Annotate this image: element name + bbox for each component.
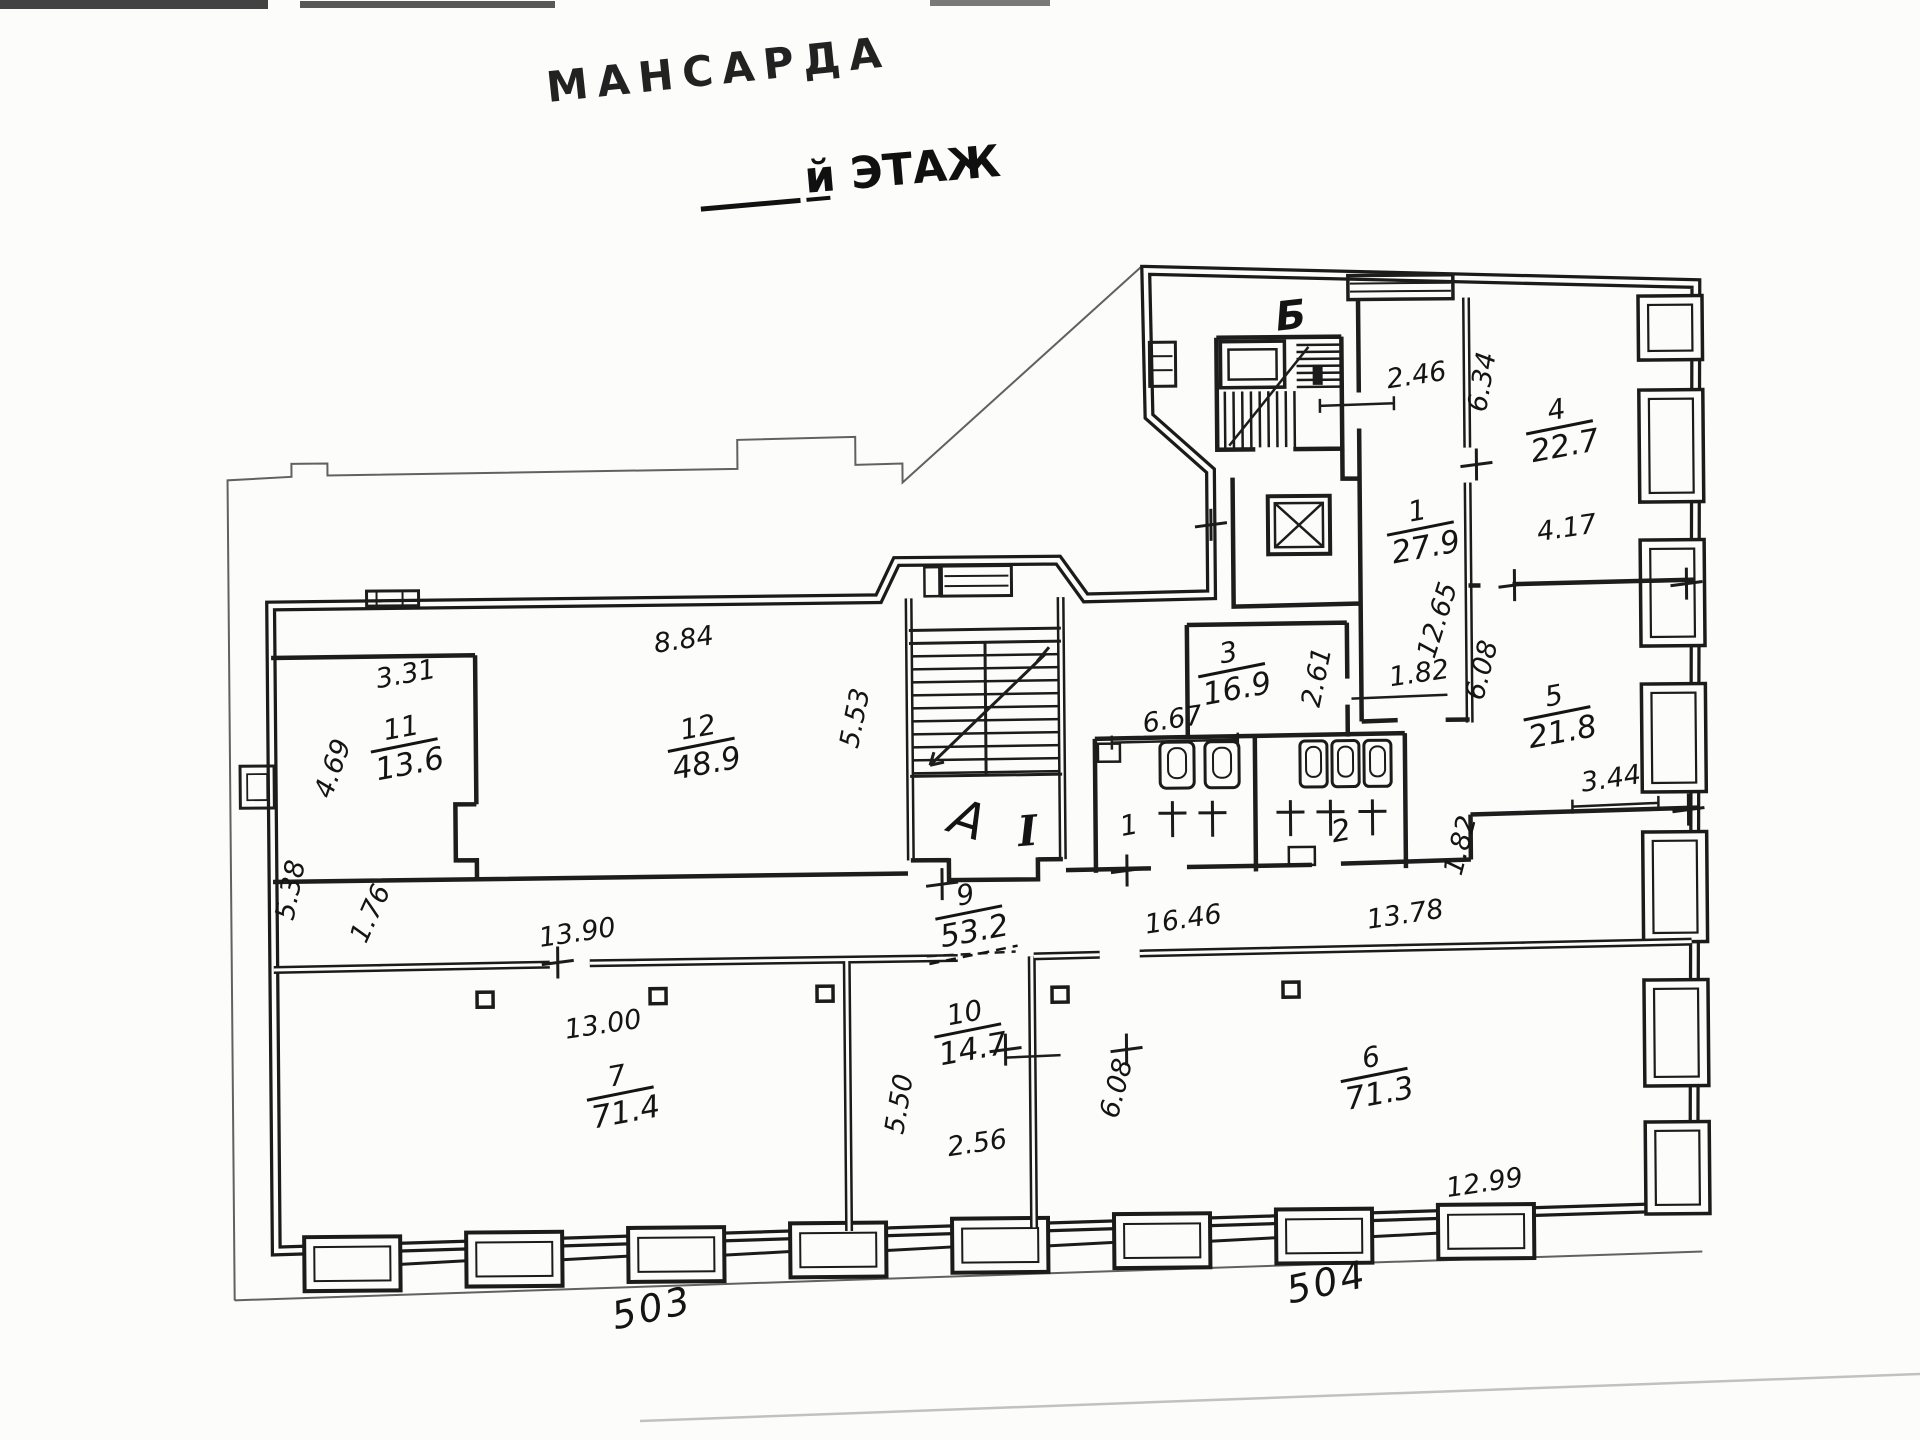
svg-text:13.6: 13.6 xyxy=(373,740,447,788)
point-label: 1 xyxy=(1117,807,1141,843)
dimension-label: 12.99 xyxy=(1444,1162,1525,1204)
svg-text:14.7: 14.7 xyxy=(936,1025,1011,1073)
dimension-label: 13.78 xyxy=(1365,894,1446,936)
right-window-bays xyxy=(1638,296,1710,1215)
floorplan-drawing: 2.466.344.173.441.8212.656.081.822.616.6… xyxy=(226,262,1711,1342)
columns xyxy=(477,982,1299,1007)
svg-text:11: 11 xyxy=(380,708,421,747)
svg-text:7: 7 xyxy=(605,1058,629,1094)
svg-text:6: 6 xyxy=(1359,1039,1383,1075)
svg-text:16.9: 16.9 xyxy=(1200,665,1274,713)
svg-text:71.4: 71.4 xyxy=(589,1088,663,1136)
dimension-label: 13.00 xyxy=(563,1004,644,1046)
dimension-label: 2.61 xyxy=(1296,645,1338,710)
point-label: Б xyxy=(1273,292,1309,341)
svg-text:12: 12 xyxy=(677,708,718,747)
dimension-label: 6.67 xyxy=(1140,700,1204,740)
room-label: 316.9 xyxy=(1192,630,1274,714)
dimension-label: 2.46 xyxy=(1384,356,1448,396)
scanned-floorplan-page: МАНСАРДА й ЭТАЖ xyxy=(0,0,1920,1440)
inner-walls-major xyxy=(268,296,1694,1236)
svg-text:9: 9 xyxy=(954,877,978,913)
dimension-label: 13.90 xyxy=(537,912,618,954)
svg-text:27.9: 27.9 xyxy=(1389,523,1463,571)
point-label: I xyxy=(1015,806,1041,857)
dimension-label: 5.53 xyxy=(834,686,876,751)
dimension-label: 3.31 xyxy=(373,654,438,695)
svg-text:71.3: 71.3 xyxy=(1342,1070,1416,1118)
floor-number-blank xyxy=(701,200,801,209)
svg-text:21.8: 21.8 xyxy=(1525,708,1599,756)
svg-text:22.7: 22.7 xyxy=(1528,422,1603,470)
svg-text:10: 10 xyxy=(944,993,985,1032)
dimension-label: 6.08 xyxy=(1094,1055,1139,1121)
room-label: 521.8 xyxy=(1517,673,1599,757)
floorplan-svg: МАНСАРДА й ЭТАЖ xyxy=(0,0,1920,1440)
svg-text:1: 1 xyxy=(1405,493,1429,529)
dimension-label: 1.82 xyxy=(1438,812,1483,878)
svg-text:3: 3 xyxy=(1217,635,1241,671)
room-label: 671.3 xyxy=(1334,1034,1416,1118)
dimension-label: 4.69 xyxy=(308,735,357,802)
dimension-label: 1.82 xyxy=(1387,654,1451,694)
title-block: МАНСАРДА й ЭТАЖ xyxy=(544,27,1003,213)
dimension-label: 12.65 xyxy=(1411,579,1464,662)
room-label: 422.7 xyxy=(1520,387,1603,471)
dimension-label: 16.46 xyxy=(1143,899,1224,941)
dimension-label: 5.50 xyxy=(879,1072,919,1136)
room-label: 1248.9 xyxy=(662,704,744,788)
dimension-label: 3.44 xyxy=(1579,759,1643,799)
svg-text:5: 5 xyxy=(1542,678,1566,714)
room-label: 1014.7 xyxy=(928,990,1011,1074)
dimension-label: 8.84 xyxy=(652,620,716,660)
svg-text:4: 4 xyxy=(1544,392,1568,428)
room-label: 1113.6 xyxy=(365,705,447,789)
room-label: 771.4 xyxy=(581,1053,663,1137)
labels-layer: 2.466.344.173.441.8212.656.081.822.616.6… xyxy=(264,289,1647,1342)
room-label: 127.9 xyxy=(1381,488,1463,572)
stairwell-b xyxy=(1216,337,1342,450)
point-label: А xyxy=(940,786,993,853)
page-title: МАНСАРДА xyxy=(544,27,893,112)
elevator-shaft xyxy=(1268,496,1331,555)
dimension-label: 4.17 xyxy=(1535,509,1599,549)
floor-suffix: й ЭТАЖ xyxy=(802,136,1002,204)
point-label: 2 xyxy=(1328,812,1353,850)
dimension-label: 1.76 xyxy=(344,880,397,948)
svg-text:48.9: 48.9 xyxy=(670,740,744,788)
stairwell-a xyxy=(909,628,1062,776)
dimension-label: 2.56 xyxy=(945,1124,1009,1164)
